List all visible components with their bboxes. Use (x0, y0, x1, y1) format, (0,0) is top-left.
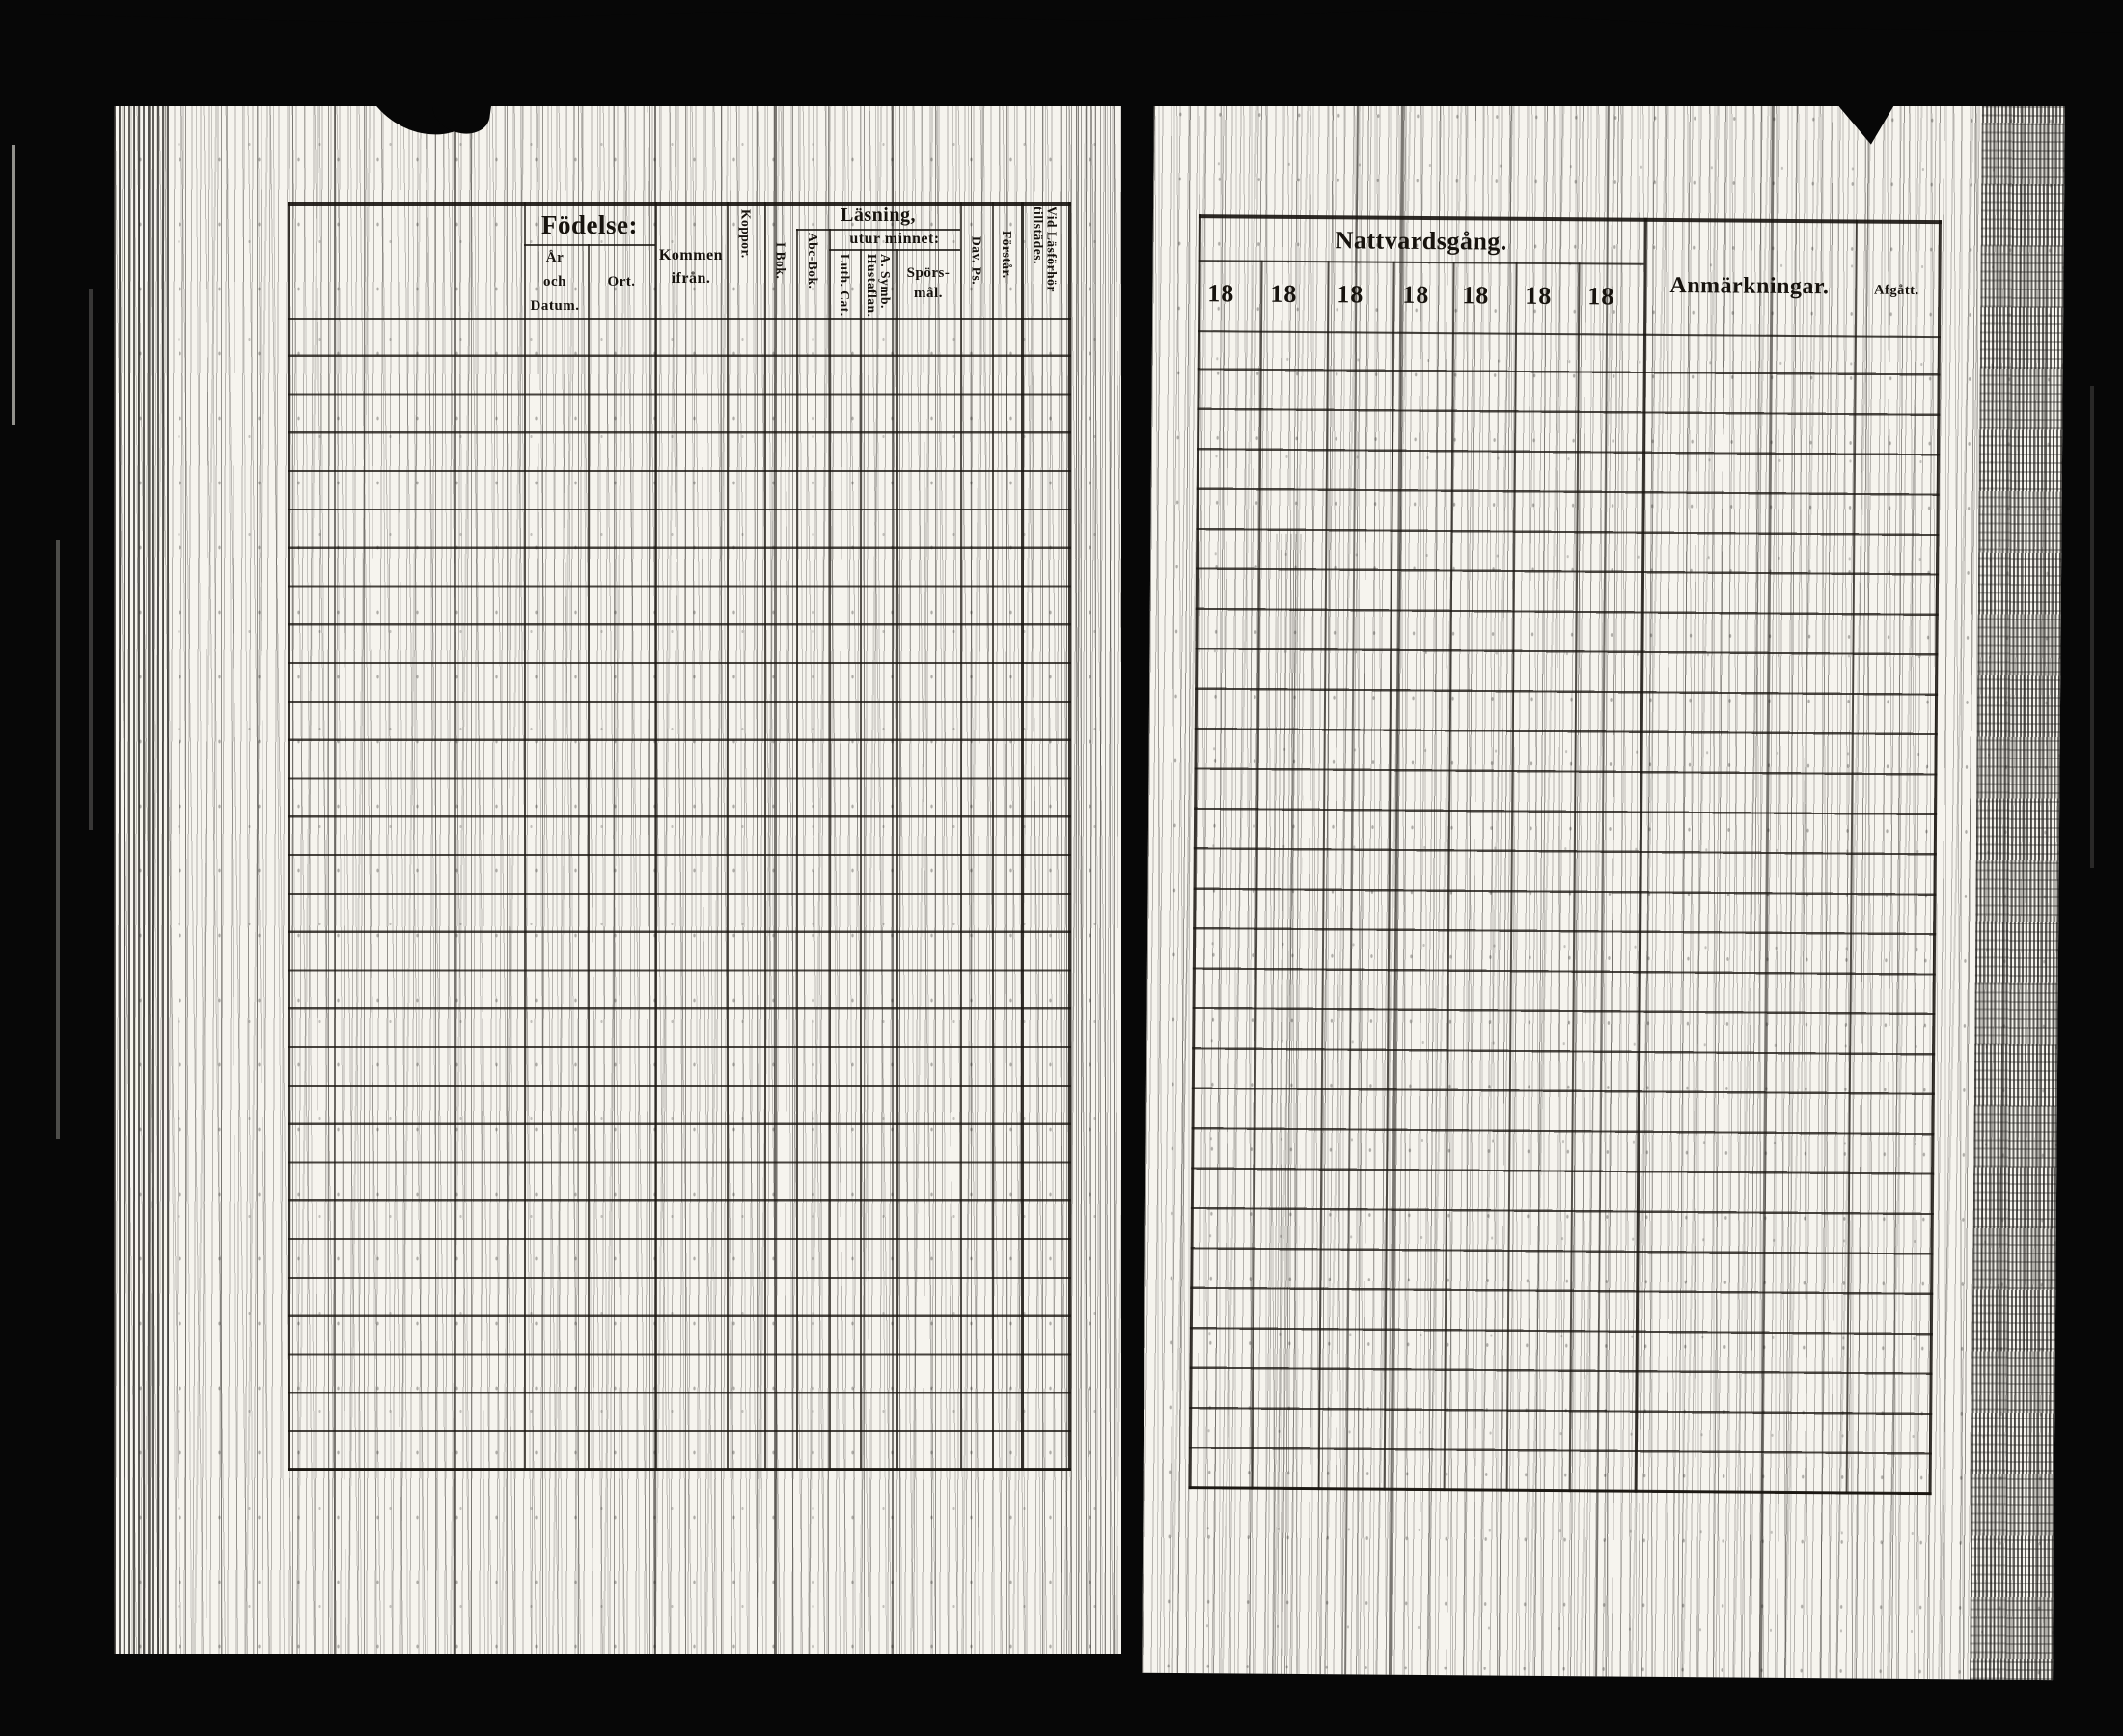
ort-column-header: Ort. (588, 246, 655, 318)
column-line (1252, 261, 1263, 1490)
film-scratch-white (56, 540, 60, 1139)
column-line (1021, 202, 1024, 1471)
vid-lasforhor-column-header: Vid Läsförhör tillstädes. (1021, 207, 1068, 334)
right-page: Nattvardsgång. 18 18 18 18 18 18 18 Anmä… (1142, 69, 2065, 1680)
afgatt-column-header: Afgått. (1855, 265, 1938, 315)
nattvardsgang-group-header: Nattvardsgång. (1199, 220, 1644, 262)
column-line (860, 249, 862, 1471)
column-line (896, 249, 898, 1471)
dav-ps-column-header: Dav. Ps. (960, 236, 992, 338)
table-border (1068, 202, 1071, 1471)
year-column-head: 18 (1198, 260, 1261, 331)
film-scratch-white (89, 289, 93, 830)
column-line (960, 202, 962, 1471)
left-page: Födelse: År och Datum. Ort. Kommen ifrån… (114, 50, 1121, 1654)
column-line (727, 202, 729, 1471)
forstar-column-header: Förstår. (992, 231, 1021, 332)
scanned-ledger-spread: Födelse: År och Datum. Ort. Kommen ifrån… (0, 0, 2123, 1736)
a-symb-hustaflan-column-header: A. Symb. Hustaflan. (860, 254, 896, 362)
communion-record-table: Nattvardsgång. 18 18 18 18 18 18 18 Anmä… (1189, 214, 1942, 1495)
table-border (1189, 214, 1201, 1489)
i-bok-column-header: I Bok. (764, 242, 796, 339)
column-line (796, 229, 798, 1471)
household-examination-table: Födelse: År och Datum. Ort. Kommen ifrån… (288, 202, 1071, 1471)
abc-bok-column-header: Abc-Bok. (796, 233, 829, 341)
year-column-head: 18 (1515, 262, 1579, 334)
column-line (992, 202, 994, 1471)
table-border (1929, 220, 1942, 1495)
year-column-head: 18 (1392, 262, 1453, 332)
dark-edge-band (114, 50, 170, 1654)
header-bottom-line (288, 318, 1071, 320)
ar-och-datum-column-header: År och Datum. (522, 246, 588, 318)
year-header-row: 18 18 18 18 18 18 18 (1198, 260, 1644, 334)
year-column-head: 18 (1327, 261, 1393, 332)
fodelse-group-header: Födelse: (524, 207, 655, 243)
column-line (829, 229, 831, 1471)
year-column-head: 18 (1260, 261, 1328, 332)
table-border (1189, 1486, 1932, 1495)
luth-cat-column-header: Luth. Cat. (829, 254, 860, 362)
sporsmal-column-header: Spörs- mål. (896, 252, 960, 316)
koppor-column-header: Koppor. (727, 209, 764, 320)
column-line (1569, 262, 1581, 1492)
table-border (288, 202, 290, 1471)
year-column-head: 18 (1578, 262, 1644, 334)
dark-edge-band (1970, 76, 2065, 1681)
column-line (1506, 262, 1518, 1492)
column-line (1635, 218, 1647, 1493)
lasning-group-header: Läsning, (796, 204, 960, 228)
column-line (1384, 262, 1395, 1491)
kommen-ifran-column-header: Kommen ifrån. (655, 238, 727, 296)
utur-minnet-group-header: utur minnet: (829, 229, 960, 249)
column-line (764, 202, 766, 1471)
torn-bottom-edge (0, 0, 2123, 106)
column-line (655, 202, 657, 1471)
column-line (524, 202, 526, 1471)
film-scratch-white (12, 145, 15, 425)
column-line (1318, 261, 1330, 1490)
column-line (588, 244, 590, 1471)
film-scratch-white (2090, 386, 2094, 868)
ruled-rows (1189, 330, 1941, 1495)
column-line (1444, 262, 1455, 1491)
anmarkningar-column-header: Anmärkningar. (1643, 257, 1855, 317)
table-border (288, 1468, 1071, 1471)
year-column-head: 18 (1452, 262, 1516, 333)
ruled-rows (288, 318, 1071, 1471)
header-line (829, 249, 960, 251)
column-line (1846, 219, 1858, 1494)
